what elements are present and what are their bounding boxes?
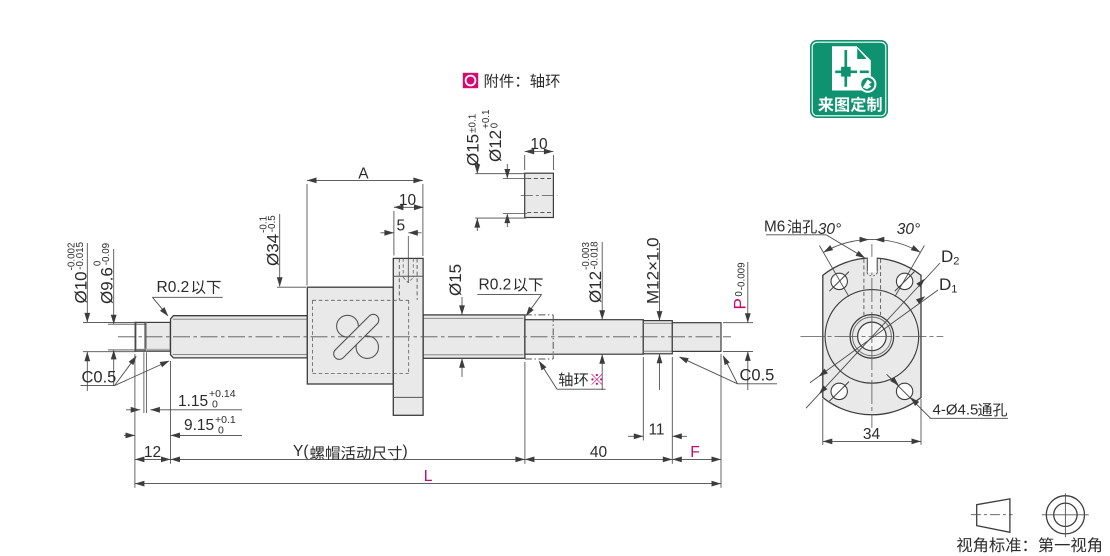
svg-text:F: F xyxy=(690,444,699,461)
svg-text:1.15: 1.15 xyxy=(178,393,208,410)
svg-text:34: 34 xyxy=(863,426,881,443)
svg-text:0: 0 xyxy=(212,399,218,411)
svg-text:): ) xyxy=(403,443,408,460)
svg-text:C0.5: C0.5 xyxy=(740,367,775,385)
svg-text:9.15: 9.15 xyxy=(184,417,214,434)
svg-text:0: 0 xyxy=(218,425,224,437)
svg-text:40: 40 xyxy=(590,444,608,461)
svg-text:10: 10 xyxy=(530,136,548,153)
svg-text:Y(: Y( xyxy=(293,443,309,460)
svg-text:M12×1.0: M12×1.0 xyxy=(644,237,663,304)
svg-text:30°: 30° xyxy=(818,221,841,238)
svg-text:10: 10 xyxy=(399,192,417,209)
svg-text:30°: 30° xyxy=(897,221,920,238)
svg-text:R0.2: R0.2 xyxy=(479,277,512,294)
svg-text:L: L xyxy=(424,468,433,485)
svg-text:4-Ø4.5: 4-Ø4.5 xyxy=(933,402,979,419)
svg-text:11: 11 xyxy=(648,422,664,439)
svg-text:A: A xyxy=(358,166,369,183)
svg-text:12: 12 xyxy=(144,444,161,461)
svg-text:M6: M6 xyxy=(764,219,785,236)
svg-text:5: 5 xyxy=(396,218,405,235)
svg-text:Ø15: Ø15 xyxy=(446,264,465,296)
svg-text:C0.5: C0.5 xyxy=(82,369,117,387)
svg-text:R0.2: R0.2 xyxy=(157,279,190,296)
